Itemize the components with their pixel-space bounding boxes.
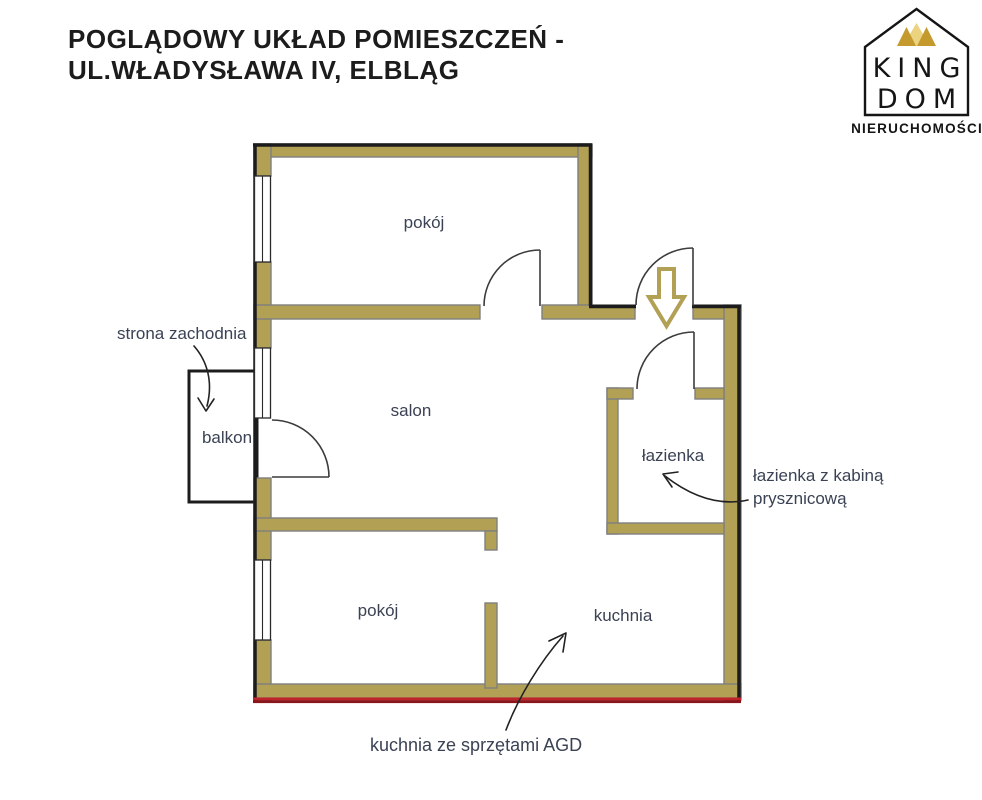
walls [254,144,741,700]
wall-bath-left [607,388,618,534]
label-room-top: pokój [404,213,445,232]
label-room-bottom: pokój [358,601,399,620]
label-salon: salon [391,401,432,420]
wall-bath-top-left [607,388,633,399]
wall-kitchen-divider [485,603,497,688]
doors [272,248,694,477]
wall-bath-bottom [607,523,724,534]
logo-subtitle: NIERUCHOMOŚCI [851,121,982,136]
wall-partition1-seg1 [254,305,480,319]
kitchen-note: kuchnia ze sprzętami AGD [370,735,582,755]
windows [255,176,271,640]
foundation-line [253,698,741,704]
door-arc-bathroom [637,332,694,389]
foundation-line-bright [253,698,741,701]
wall-partition2-elbow [485,531,497,550]
annotation-arrows [194,346,748,730]
entrance-arrow-icon [649,269,684,326]
door-arc-balcony [272,420,329,477]
bathroom-note-line1: łazienka z kabiną [753,466,884,485]
foundation-line-dark [253,700,741,703]
wall-bath-top-right [695,388,724,399]
kitchen-note-arrow [506,636,563,730]
label-balcony: balkon [202,428,252,447]
room-labels: pokój salon balkon łazienka pokój kuchni… [202,213,705,625]
label-kitchen: kuchnia [594,606,653,625]
wall-partition2 [254,518,497,531]
logo-word-dom: DOM [877,84,963,115]
west-side-note: strona zachodnia [117,324,247,343]
agency-logo: KING DOM NIERUCHOMOŚCI [851,9,982,136]
logo-word-king: KING [873,53,968,84]
bathroom-note-line2: prysznicową [753,489,847,508]
door-arc-room-top [484,250,540,306]
floor-plan-canvas: pokój salon balkon łazienka pokój kuchni… [0,0,982,800]
label-bathroom: łazienka [642,446,705,465]
